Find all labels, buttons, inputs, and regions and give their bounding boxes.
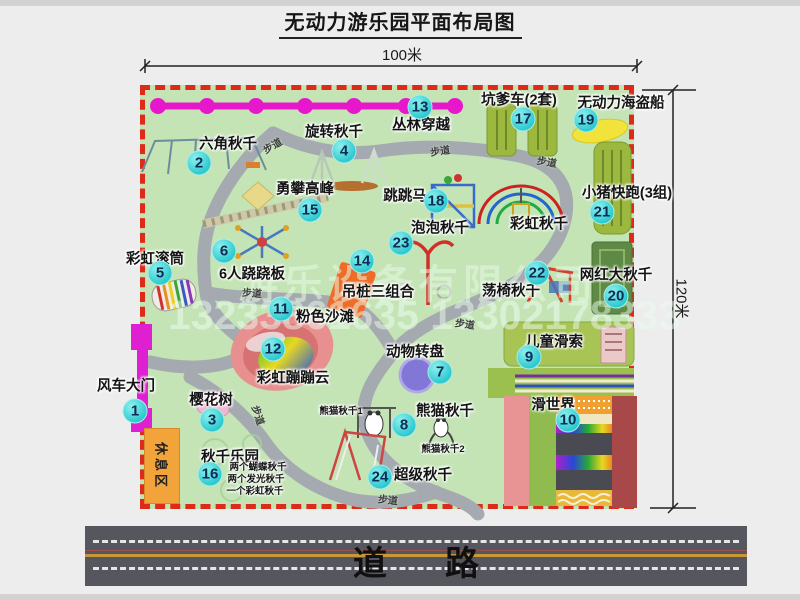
page-title-text: 无动力游乐园平面布局图 [279, 6, 522, 39]
extra-label-1: 熊猫秋千1 [319, 403, 362, 417]
road: 道路 [85, 526, 747, 586]
path-label-6: 步道 [377, 490, 398, 507]
path-label-3: 步道 [242, 284, 263, 300]
item-number-15: 15 [298, 198, 323, 223]
item-number-14: 14 [350, 249, 375, 274]
item-label-8: 熊猫秋千 [416, 400, 474, 421]
item-number-16: 16 [198, 462, 223, 487]
screenshot-stage: 无动力游乐园平面布局图 100米 120米 [0, 0, 800, 600]
item-number-5: 5 [148, 261, 173, 286]
item-label-15: 勇攀高峰 [276, 178, 334, 199]
item-label-12: 彩虹蹦蹦云 [257, 367, 330, 388]
item-label-23: 泡泡秋千 [411, 217, 469, 238]
item-number-2: 2 [187, 151, 212, 176]
item-label-2: 六角秋千 [199, 133, 257, 154]
path-label-2: 步道 [536, 152, 558, 170]
path-label-1: 步道 [429, 141, 451, 159]
extra-label-0: 彩虹秋千 [510, 213, 568, 234]
item-number-21: 21 [590, 200, 615, 225]
item-number-3: 3 [200, 408, 225, 433]
item-label-21: 小猪快跑(3组) [582, 182, 672, 203]
path-label-4: 步道 [454, 314, 476, 332]
item-number-4: 4 [332, 139, 357, 164]
item-number-18: 18 [424, 189, 449, 214]
item-number-13: 13 [408, 95, 433, 120]
extra-label-2: 熊猫秋千2 [421, 441, 464, 455]
item-number-1: 1 [123, 399, 148, 424]
item-number-24: 24 [368, 465, 393, 490]
page-title: 无动力游乐园平面布局图 [0, 6, 800, 39]
road-label: 道路 [85, 536, 747, 585]
item-label-7: 动物转盘 [386, 341, 444, 362]
item-number-8: 8 [392, 413, 417, 438]
item-number-19: 19 [574, 108, 599, 133]
item-number-23: 23 [389, 231, 414, 256]
item-label-24: 超级秋千 [394, 464, 452, 485]
item-number-7: 7 [428, 360, 453, 385]
item-number-11: 11 [269, 297, 294, 322]
item-label-20: 网红大秋千 [580, 264, 653, 285]
item-number-12: 12 [261, 337, 286, 362]
item-number-17: 17 [511, 107, 536, 132]
item-label-1: 风车大门 [97, 375, 155, 396]
item-number-10: 10 [556, 408, 581, 433]
item-number-20: 20 [604, 284, 629, 309]
item-label-14: 吊桩三组合 [342, 281, 415, 302]
bottom-edge-strip [0, 594, 800, 600]
item-number-6: 6 [212, 239, 237, 264]
width-dimension-label: 100米 [352, 44, 452, 65]
item-number-22: 22 [525, 261, 550, 286]
item-number-9: 9 [517, 345, 542, 370]
height-dimension-label: 120米 [672, 269, 693, 329]
rest-area: 休息区 [144, 428, 180, 504]
item-label-18: 跳跳马 [383, 185, 427, 206]
item-label-6: 6人跷跷板 [219, 263, 285, 284]
item-label-11: 粉色沙滩 [296, 306, 354, 327]
extra-label-5: 一个彩虹秋千 [226, 483, 283, 497]
rest-area-label: 休息区 [153, 442, 172, 490]
item-label-3: 樱花树 [189, 389, 233, 410]
item-label-4: 旋转秋千 [305, 121, 363, 142]
